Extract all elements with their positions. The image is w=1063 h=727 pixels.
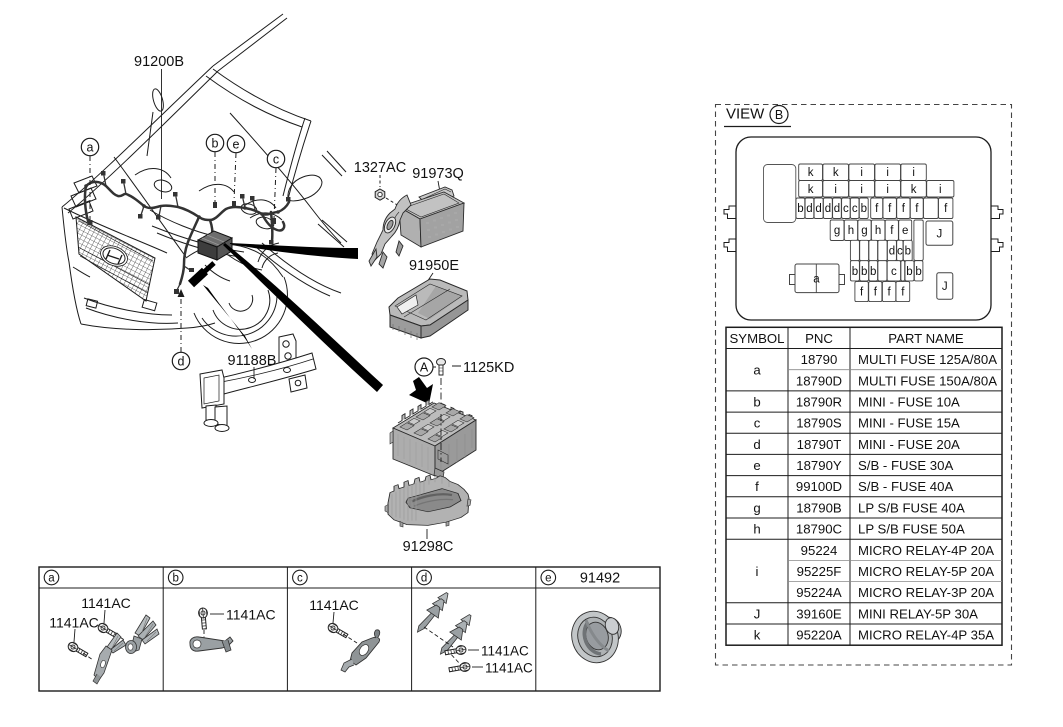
svg-text:MICRO RELAY-5P 20A: MICRO RELAY-5P 20A bbox=[858, 564, 994, 579]
svg-text:g: g bbox=[834, 225, 840, 237]
svg-text:d: d bbox=[889, 246, 895, 258]
svg-text:a: a bbox=[87, 141, 94, 155]
svg-text:18790D: 18790D bbox=[796, 373, 842, 388]
svg-text:MINI - FUSE 15A: MINI - FUSE 15A bbox=[858, 416, 960, 431]
svg-text:k: k bbox=[911, 184, 917, 196]
svg-text:MINI - FUSE 10A: MINI - FUSE 10A bbox=[858, 395, 960, 410]
svg-text:18790C: 18790C bbox=[796, 522, 843, 537]
svg-text:LP S/B FUSE 40A: LP S/B FUSE 40A bbox=[858, 500, 965, 515]
svg-text:MICRO RELAY-3P 20A: MICRO RELAY-3P 20A bbox=[858, 585, 994, 600]
svg-text:a: a bbox=[813, 273, 820, 285]
svg-text:SYMBOL: SYMBOL bbox=[730, 331, 785, 346]
svg-text:b: b bbox=[905, 246, 911, 258]
svg-text:J: J bbox=[937, 229, 943, 241]
svg-text:i: i bbox=[886, 184, 889, 196]
svg-text:MULTI FUSE 125A/80A: MULTI FUSE 125A/80A bbox=[858, 352, 997, 367]
svg-text:MINI RELAY-5P 30A: MINI RELAY-5P 30A bbox=[858, 606, 978, 621]
svg-text:PART NAME: PART NAME bbox=[888, 331, 964, 346]
svg-text:i: i bbox=[860, 167, 863, 179]
svg-text:c: c bbox=[273, 153, 279, 167]
svg-text:39160E: 39160E bbox=[796, 606, 842, 621]
svg-text:k: k bbox=[808, 167, 814, 179]
svg-text:e: e bbox=[545, 573, 551, 585]
svg-text:91298C: 91298C bbox=[403, 539, 454, 555]
svg-text:b: b bbox=[915, 266, 921, 278]
svg-text:d: d bbox=[753, 437, 760, 452]
svg-text:i: i bbox=[912, 167, 915, 179]
svg-text:b: b bbox=[172, 573, 178, 585]
svg-text:c: c bbox=[297, 573, 303, 585]
svg-text:S/B - FUSE 30A: S/B - FUSE 30A bbox=[858, 458, 953, 473]
svg-text:c: c bbox=[754, 416, 761, 431]
svg-text:c: c bbox=[897, 246, 903, 258]
svg-text:d: d bbox=[806, 203, 812, 215]
svg-text:k: k bbox=[808, 184, 814, 196]
svg-text:c: c bbox=[852, 203, 858, 215]
svg-text:1141AC: 1141AC bbox=[226, 607, 276, 623]
svg-text:91200B: 91200B bbox=[134, 54, 184, 70]
svg-text:1141AC: 1141AC bbox=[81, 595, 131, 611]
svg-text:91950E: 91950E bbox=[409, 258, 459, 274]
svg-text:18790Y: 18790Y bbox=[796, 458, 842, 473]
svg-text:d: d bbox=[834, 203, 840, 215]
svg-text:b: b bbox=[870, 266, 876, 278]
svg-text:MULTI FUSE 150A/80A: MULTI FUSE 150A/80A bbox=[858, 373, 997, 388]
svg-text:95220A: 95220A bbox=[796, 628, 842, 643]
svg-text:b: b bbox=[753, 395, 760, 410]
svg-text:g: g bbox=[753, 500, 760, 515]
svg-text:18790R: 18790R bbox=[796, 395, 842, 410]
svg-text:b: b bbox=[852, 266, 858, 278]
svg-text:b: b bbox=[861, 266, 867, 278]
svg-text:i: i bbox=[939, 184, 942, 196]
svg-text:PNC: PNC bbox=[805, 331, 833, 346]
svg-text:MICRO RELAY-4P 35A: MICRO RELAY-4P 35A bbox=[858, 628, 994, 643]
svg-text:k: k bbox=[754, 628, 761, 643]
svg-text:18790B: 18790B bbox=[796, 500, 842, 515]
svg-text:J: J bbox=[942, 281, 948, 293]
svg-text:1125KD: 1125KD bbox=[463, 360, 514, 376]
svg-text:95225F: 95225F bbox=[797, 564, 842, 579]
svg-text:18790: 18790 bbox=[801, 352, 838, 367]
svg-text:A: A bbox=[420, 361, 429, 375]
svg-text:b: b bbox=[797, 203, 803, 215]
svg-text:VIEW: VIEW bbox=[726, 106, 765, 123]
svg-text:h: h bbox=[848, 225, 854, 237]
svg-text:1327AC: 1327AC bbox=[354, 160, 406, 176]
svg-text:91973Q: 91973Q bbox=[412, 166, 464, 182]
svg-text:c: c bbox=[843, 203, 849, 215]
svg-text:h: h bbox=[753, 522, 760, 537]
svg-text:e: e bbox=[902, 225, 908, 237]
svg-text:1141AC: 1141AC bbox=[309, 597, 359, 613]
svg-text:MINI - FUSE 20A: MINI - FUSE 20A bbox=[858, 437, 960, 452]
svg-text:J: J bbox=[754, 606, 761, 621]
svg-text:LP S/B FUSE 50A: LP S/B FUSE 50A bbox=[858, 522, 965, 537]
svg-text:a: a bbox=[753, 363, 761, 378]
svg-text:e: e bbox=[233, 138, 240, 152]
svg-text:MICRO RELAY-4P 20A: MICRO RELAY-4P 20A bbox=[858, 543, 994, 558]
svg-text:18790T: 18790T bbox=[797, 437, 842, 452]
svg-text:b: b bbox=[861, 203, 867, 215]
svg-text:d: d bbox=[421, 573, 427, 585]
svg-text:B: B bbox=[775, 108, 783, 122]
svg-text:f: f bbox=[755, 479, 759, 494]
svg-text:i: i bbox=[886, 167, 889, 179]
svg-text:h: h bbox=[875, 225, 881, 237]
svg-text:S/B - FUSE 40A: S/B - FUSE 40A bbox=[858, 479, 953, 494]
svg-text:1141AC: 1141AC bbox=[481, 644, 529, 659]
svg-text:c: c bbox=[891, 266, 897, 278]
svg-text:d: d bbox=[178, 355, 185, 369]
svg-text:99100D: 99100D bbox=[796, 479, 842, 494]
svg-text:a: a bbox=[48, 573, 55, 585]
svg-text:1141AC: 1141AC bbox=[49, 615, 99, 631]
svg-text:b: b bbox=[906, 266, 912, 278]
svg-text:1141AC: 1141AC bbox=[485, 661, 533, 676]
svg-text:95224: 95224 bbox=[801, 543, 838, 558]
svg-text:e: e bbox=[753, 458, 760, 473]
svg-text:91188B: 91188B bbox=[228, 353, 277, 369]
svg-text:18790S: 18790S bbox=[796, 416, 842, 431]
svg-text:d: d bbox=[815, 203, 821, 215]
svg-text:91492: 91492 bbox=[580, 571, 620, 587]
svg-text:95224A: 95224A bbox=[796, 585, 842, 600]
svg-text:i: i bbox=[834, 184, 837, 196]
svg-text:i: i bbox=[756, 564, 759, 579]
svg-text:k: k bbox=[833, 167, 839, 179]
svg-text:b: b bbox=[212, 137, 219, 151]
svg-text:g: g bbox=[861, 225, 867, 237]
svg-text:d: d bbox=[825, 203, 831, 215]
svg-text:i: i bbox=[860, 184, 863, 196]
